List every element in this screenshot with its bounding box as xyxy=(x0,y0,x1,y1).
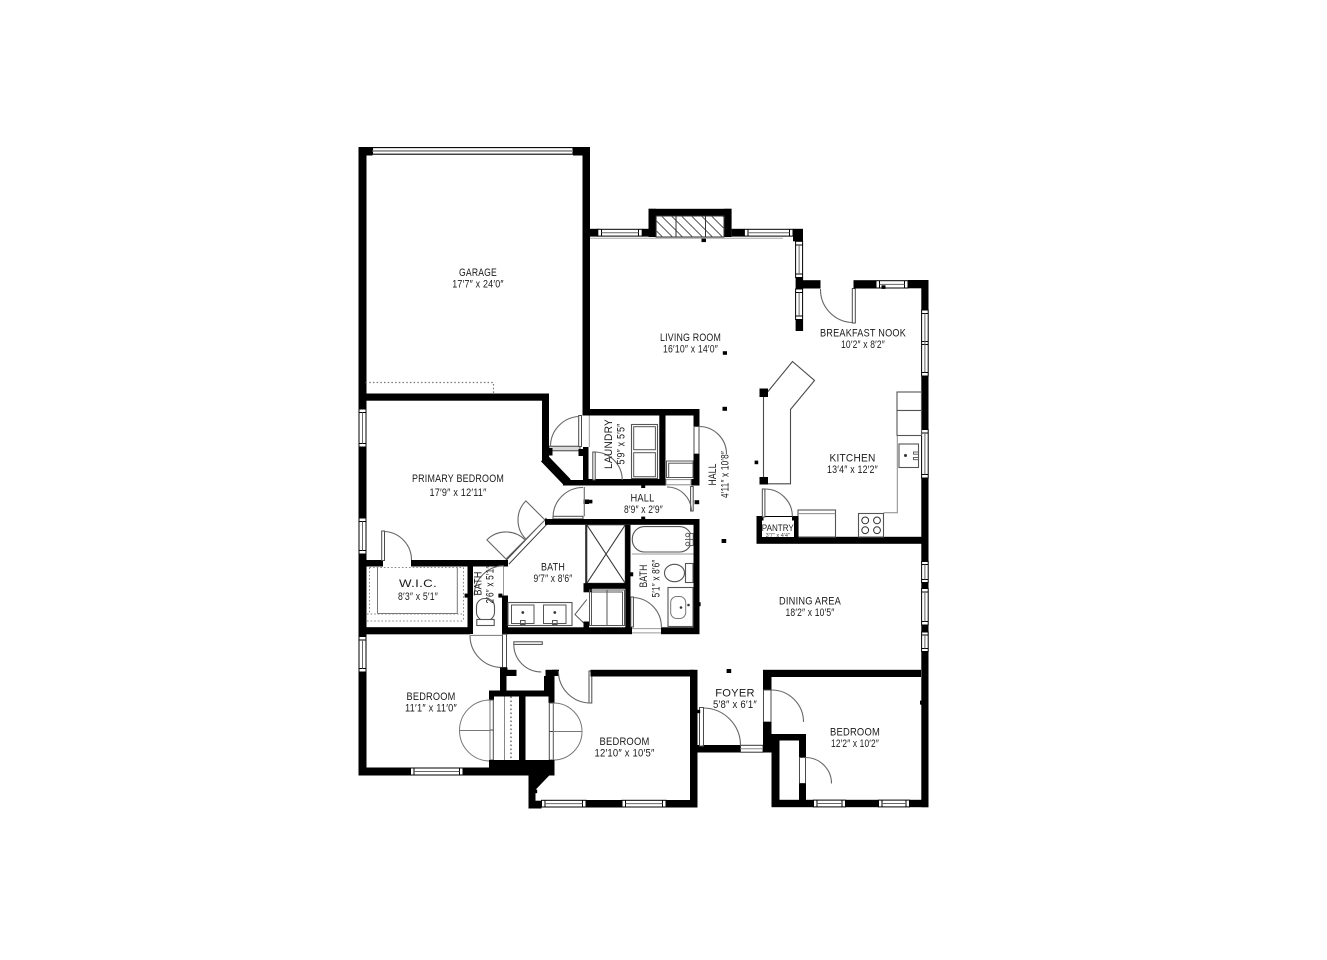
svg-text:12′2″ x 10′2″: 12′2″ x 10′2″ xyxy=(831,738,879,750)
svg-text:11′1″ x 11′0″: 11′1″ x 11′0″ xyxy=(405,703,457,715)
svg-text:8′3″ x 5′1″: 8′3″ x 5′1″ xyxy=(398,591,438,603)
svg-text:BATH: BATH xyxy=(638,565,650,588)
svg-text:3′7″ x 4′4″: 3′7″ x 4′4″ xyxy=(766,533,790,539)
svg-text:4′11″ x 10′8″: 4′11″ x 10′8″ xyxy=(720,451,732,498)
svg-text:DINING AREA: DINING AREA xyxy=(779,596,841,608)
svg-text:FOYER: FOYER xyxy=(715,688,755,700)
svg-text:10′2″ x 8′2″: 10′2″ x 8′2″ xyxy=(841,339,885,351)
svg-text:BATH: BATH xyxy=(541,562,565,574)
svg-text:KITCHEN: KITCHEN xyxy=(830,453,876,465)
svg-text:18′2″ x 10′5″: 18′2″ x 10′5″ xyxy=(786,607,835,619)
svg-text:5′1″ x 8′6″: 5′1″ x 8′6″ xyxy=(651,560,663,598)
svg-text:GARAGE: GARAGE xyxy=(459,267,497,279)
svg-text:PRIMARY BEDROOM: PRIMARY BEDROOM xyxy=(412,473,504,485)
svg-text:BEDROOM: BEDROOM xyxy=(600,736,650,748)
svg-text:5′8″ x 6′1″: 5′8″ x 6′1″ xyxy=(713,699,757,711)
svg-text:BEDROOM: BEDROOM xyxy=(830,727,880,739)
svg-text:HALL: HALL xyxy=(707,464,719,486)
svg-text:17′7″ x 24′0″: 17′7″ x 24′0″ xyxy=(452,279,504,291)
svg-text:HALL: HALL xyxy=(631,493,655,505)
svg-text:W.I.C.: W.I.C. xyxy=(399,578,437,590)
svg-text:LIVING ROOM: LIVING ROOM xyxy=(660,332,721,344)
svg-text:5′9″ x 5′5″: 5′9″ x 5′5″ xyxy=(616,424,628,465)
svg-text:BEDROOM: BEDROOM xyxy=(407,691,456,703)
svg-text:13′4″ x 12′2″: 13′4″ x 12′2″ xyxy=(827,464,878,476)
svg-text:8′9″ x 2′9″: 8′9″ x 2′9″ xyxy=(624,504,663,516)
svg-text:9′7″ x 8′6″: 9′7″ x 8′6″ xyxy=(534,573,573,585)
svg-text:BATH: BATH xyxy=(473,572,485,596)
svg-text:2′6″ x 5′1″: 2′6″ x 5′1″ xyxy=(485,566,497,604)
svg-text:17′9″ x 12′11″: 17′9″ x 12′11″ xyxy=(430,487,487,499)
svg-text:BREAKFAST NOOK: BREAKFAST NOOK xyxy=(820,328,906,340)
svg-text:12′10″ x 10′5″: 12′10″ x 10′5″ xyxy=(595,748,655,760)
svg-text:16′10″ x 14′0″: 16′10″ x 14′0″ xyxy=(663,344,718,356)
svg-text:LAUNDRY: LAUNDRY xyxy=(603,419,615,469)
